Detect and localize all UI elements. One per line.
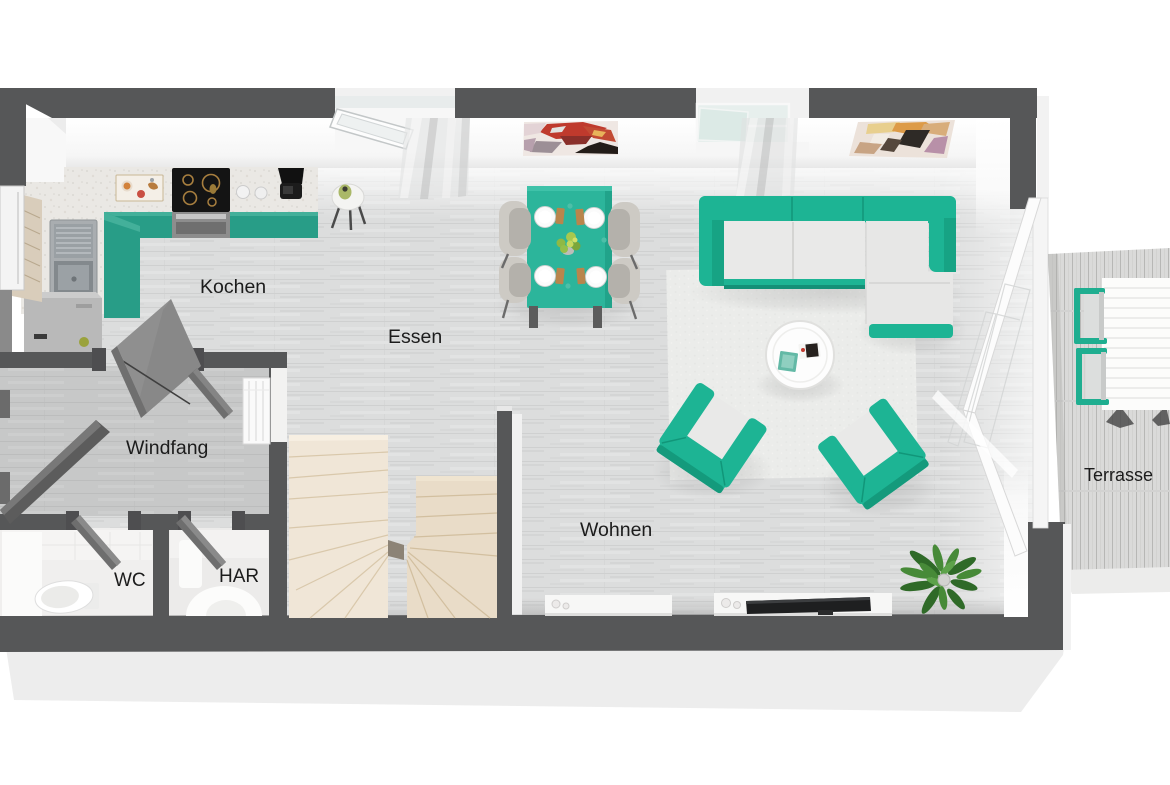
svg-text:Essen: Essen xyxy=(388,326,442,348)
svg-text:Windfang: Windfang xyxy=(126,437,208,459)
svg-text:Terrasse: Terrasse xyxy=(1084,465,1153,485)
svg-text:HAR: HAR xyxy=(219,566,259,587)
svg-text:Wohnen: Wohnen xyxy=(580,519,652,541)
svg-text:WC: WC xyxy=(114,570,146,591)
svg-text:Kochen: Kochen xyxy=(200,276,266,298)
